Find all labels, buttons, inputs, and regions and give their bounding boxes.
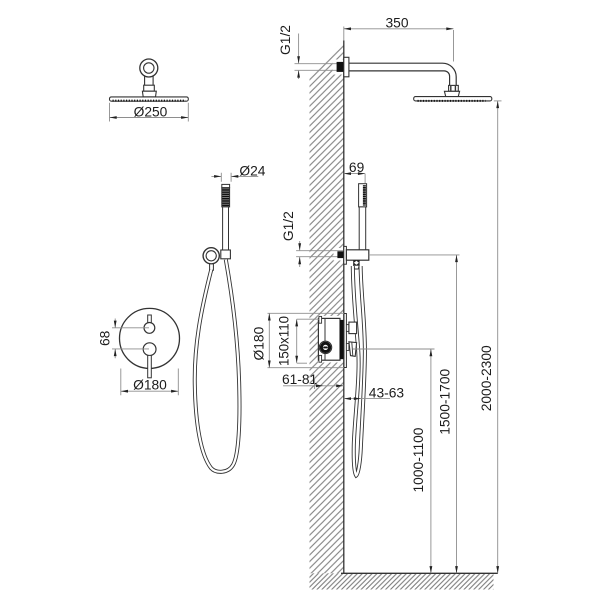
- svg-text:G1/2: G1/2: [281, 211, 296, 241]
- svg-text:69: 69: [349, 160, 365, 175]
- svg-text:43-63: 43-63: [369, 385, 405, 400]
- svg-text:150x110: 150x110: [276, 316, 291, 366]
- svg-text:G1/2: G1/2: [278, 25, 293, 55]
- svg-text:61-81: 61-81: [282, 372, 317, 387]
- svg-text:Ø180: Ø180: [252, 326, 267, 360]
- svg-text:68: 68: [98, 330, 113, 346]
- svg-text:1000-1100: 1000-1100: [411, 427, 426, 492]
- svg-text:1500-1700: 1500-1700: [437, 368, 452, 434]
- svg-text:350: 350: [385, 16, 408, 31]
- svg-text:2000-2300: 2000-2300: [479, 345, 494, 411]
- svg-text:Ø250: Ø250: [134, 104, 168, 119]
- svg-text:Ø180: Ø180: [133, 378, 167, 393]
